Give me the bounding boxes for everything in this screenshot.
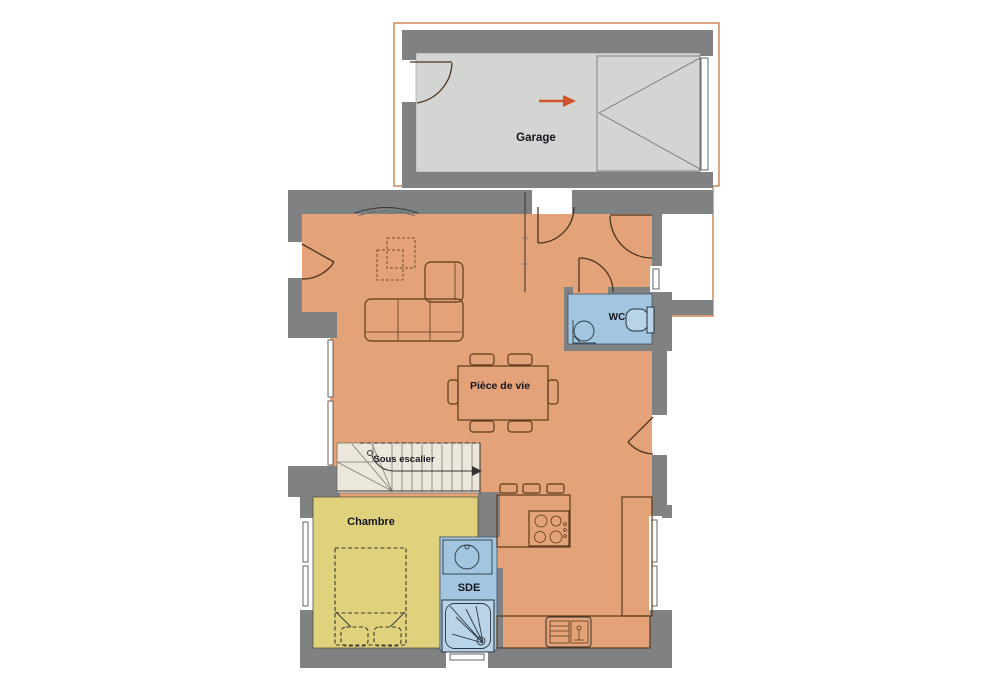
wall-segment — [652, 351, 667, 415]
floor-plan-canvas: Garage — [0, 0, 1000, 692]
wall-segment — [650, 610, 672, 668]
bedroom-label: Chambre — [347, 516, 395, 528]
wall-segment — [300, 497, 313, 518]
wall-segment — [288, 312, 337, 338]
wall-segment — [300, 610, 313, 650]
room-shower: SDE — [440, 537, 497, 652]
garage-label: Garage — [516, 132, 556, 144]
shower-icon — [442, 600, 494, 652]
wall-segment — [488, 648, 672, 668]
wall-segment — [652, 214, 662, 266]
room-wc: WC — [568, 294, 654, 344]
toilet-icon — [626, 307, 654, 333]
floor-plan: Garage — [0, 0, 1000, 692]
garage-door-opening — [701, 58, 708, 170]
wall-segment — [700, 30, 713, 56]
garage-floor — [416, 53, 700, 172]
window-kitchen-right-2 — [652, 566, 657, 606]
wall-segment — [288, 214, 302, 242]
window-kitchen-right-1 — [652, 520, 657, 562]
shower-room-label: SDE — [458, 582, 481, 594]
window-bedroom-1 — [303, 522, 308, 562]
wall-segment — [662, 300, 713, 315]
wc-label: WC — [609, 312, 626, 323]
stairs: Sous escalier — [337, 443, 482, 493]
wall-segment — [700, 172, 713, 188]
living-label: Pièce de vie — [470, 380, 530, 392]
wall-segment — [497, 568, 503, 650]
room-garage: Garage — [402, 30, 713, 188]
exterior-notch — [302, 336, 330, 466]
under-stairs-label: Sous escalier — [373, 454, 435, 465]
window-living-left-1 — [328, 340, 333, 397]
window-living-left-2 — [328, 401, 333, 465]
wall-segment — [402, 30, 416, 60]
window-bedroom-2 — [303, 566, 308, 606]
wall-segment — [564, 344, 672, 351]
wall-segment — [288, 278, 302, 314]
wall-segment — [288, 466, 340, 497]
wall-segment — [300, 648, 446, 668]
window-entry-right — [653, 269, 659, 289]
wall-segment — [572, 190, 713, 214]
stairs-floor — [337, 443, 480, 493]
wall-segment — [402, 30, 713, 53]
window-shower-bottom — [450, 654, 484, 660]
wall-segment — [402, 172, 713, 188]
